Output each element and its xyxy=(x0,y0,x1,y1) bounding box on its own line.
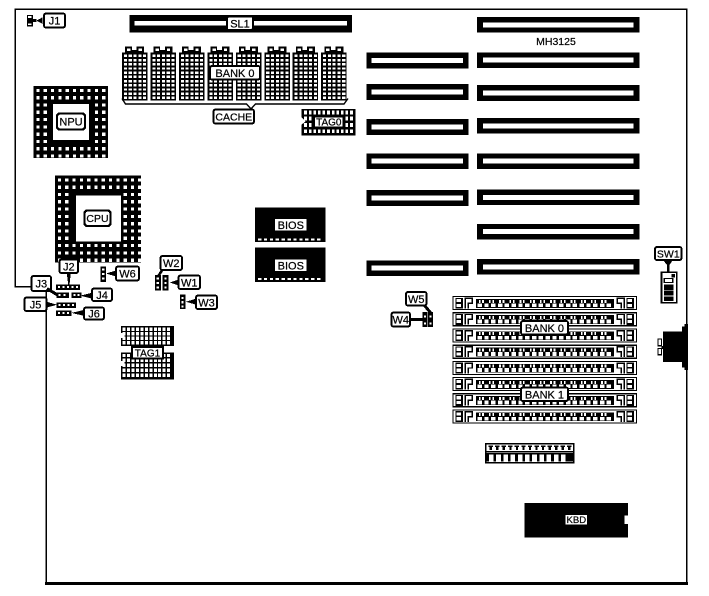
svg-text:NPU: NPU xyxy=(59,117,82,129)
svg-text:BANK 0: BANK 0 xyxy=(215,68,254,80)
svg-text:MH3125: MH3125 xyxy=(536,36,576,48)
svg-text:BIOS: BIOS xyxy=(278,220,304,232)
svg-text:CPU: CPU xyxy=(86,213,108,225)
svg-text:J6: J6 xyxy=(88,309,100,321)
svg-text:CACHE: CACHE xyxy=(215,111,252,123)
svg-text:W6: W6 xyxy=(119,269,136,281)
svg-text:KBD: KBD xyxy=(567,515,587,526)
svg-text:J4: J4 xyxy=(96,290,108,302)
svg-text:TAG0: TAG0 xyxy=(316,118,342,129)
svg-text:W3: W3 xyxy=(198,297,215,309)
svg-text:SL1: SL1 xyxy=(230,18,250,30)
svg-text:J2: J2 xyxy=(63,261,75,273)
svg-text:W5: W5 xyxy=(408,294,425,306)
svg-text:J1: J1 xyxy=(49,16,61,28)
svg-text:TAG1: TAG1 xyxy=(135,348,161,359)
svg-text:W2: W2 xyxy=(163,258,180,270)
svg-text:W4: W4 xyxy=(393,315,410,327)
svg-text:BANK 1: BANK 1 xyxy=(525,389,564,401)
svg-text:BIOS: BIOS xyxy=(278,260,304,272)
svg-text:W1: W1 xyxy=(181,277,198,289)
svg-text:J3: J3 xyxy=(35,279,47,291)
svg-text:BANK 0: BANK 0 xyxy=(525,323,564,335)
svg-text:J5: J5 xyxy=(30,299,42,311)
svg-text:SW1: SW1 xyxy=(657,248,680,260)
